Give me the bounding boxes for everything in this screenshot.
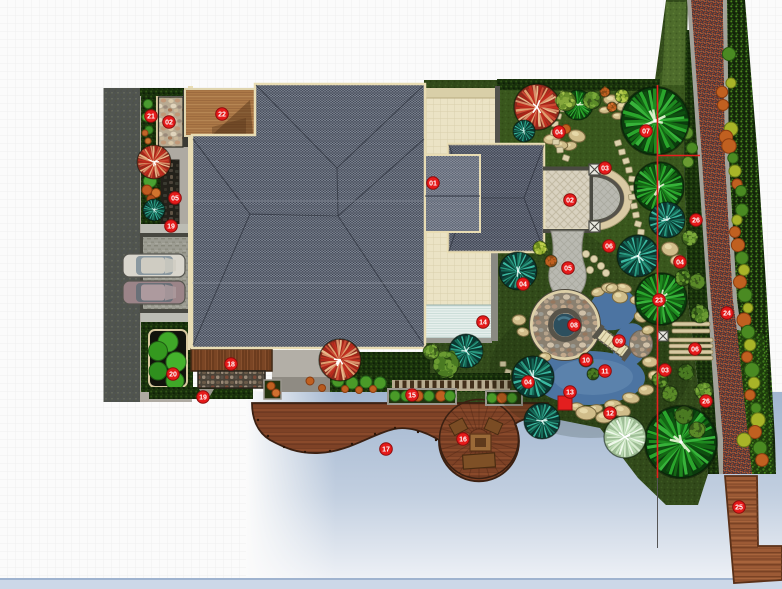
svg-text:26: 26 [702,399,710,406]
svg-text:02: 02 [566,198,574,205]
svg-text:11: 11 [601,369,609,376]
svg-text:10: 10 [582,358,590,365]
svg-text:18: 18 [227,362,235,369]
svg-text:14: 14 [479,320,487,327]
svg-text:08: 08 [570,323,578,330]
svg-text:07: 07 [642,129,650,136]
svg-text:23: 23 [655,298,663,305]
svg-text:02: 02 [165,120,173,127]
svg-text:12: 12 [606,411,614,418]
svg-text:17: 17 [382,447,390,454]
svg-text:06: 06 [605,244,613,251]
svg-text:22: 22 [218,112,226,119]
svg-text:03: 03 [601,166,609,173]
svg-text:19: 19 [167,224,175,231]
svg-text:05: 05 [564,266,572,273]
svg-text:16: 16 [459,437,467,444]
svg-text:03: 03 [661,368,669,375]
svg-text:13: 13 [566,390,574,397]
svg-text:24: 24 [723,311,731,318]
svg-text:21: 21 [147,114,155,121]
svg-text:09: 09 [615,339,623,346]
svg-text:20: 20 [169,372,177,379]
svg-text:01: 01 [429,181,437,188]
svg-text:04: 04 [676,260,684,267]
svg-text:04: 04 [524,380,532,387]
svg-text:25: 25 [735,505,743,512]
svg-text:26: 26 [692,218,700,225]
svg-text:04: 04 [555,130,563,137]
svg-text:19: 19 [199,395,207,402]
svg-text:04: 04 [519,282,527,289]
svg-text:06: 06 [691,347,699,354]
svg-text:05: 05 [171,196,179,203]
svg-text:15: 15 [408,393,416,400]
